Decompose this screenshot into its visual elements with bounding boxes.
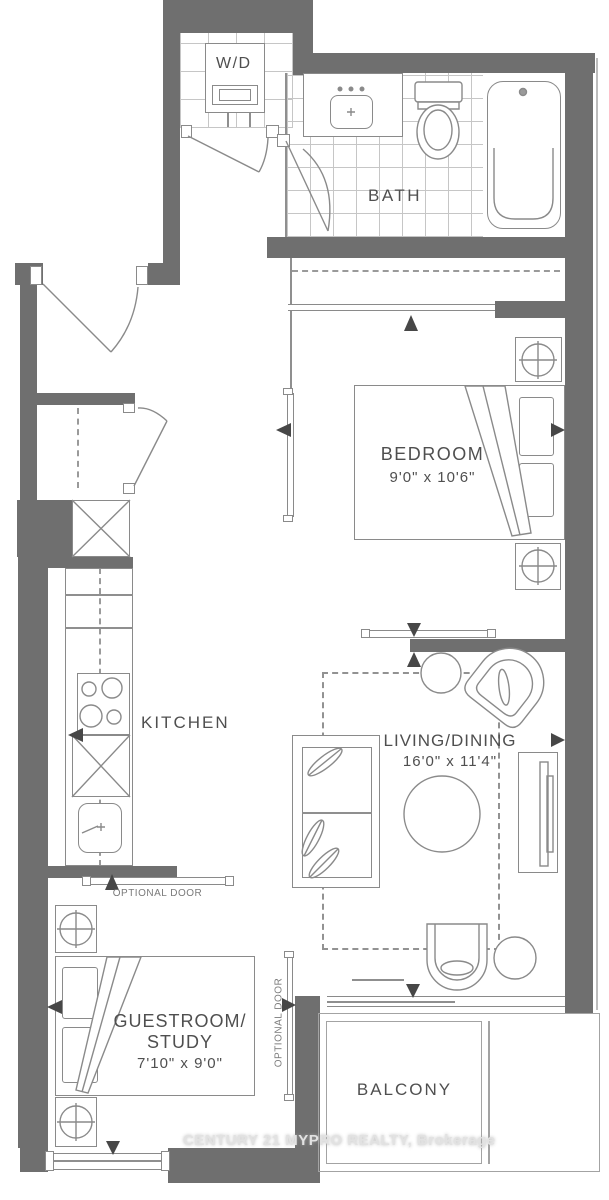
bath-door-jamb (277, 134, 290, 147)
guestroom-label-line2: STUDY (100, 1032, 260, 1053)
sliding-door-cap (487, 629, 496, 638)
window-glazing-line (596, 58, 598, 1010)
kitchen-sink (78, 803, 122, 853)
wall (410, 639, 593, 652)
nightstand (55, 905, 97, 953)
optional-door-label-side: OPTIONAL DOOR (274, 978, 285, 1068)
guestroom-window-midline (48, 1160, 168, 1162)
nightstand (515, 337, 562, 382)
closet-door-jamb (123, 403, 135, 413)
optional-door-track-side (287, 955, 293, 1095)
entry-shaft-box (72, 500, 130, 557)
wall (495, 301, 593, 318)
guestroom-dimensions: 7'10" x 9'0" (100, 1055, 260, 1072)
bath-partition-line (285, 73, 287, 237)
sliding-door-cap (284, 1094, 294, 1101)
kitchen-label: KITCHEN (141, 713, 230, 733)
optional-door-label-top: OPTIONAL DOOR (95, 888, 220, 899)
closet-door-swing (134, 408, 167, 486)
washer-dryer-leg (249, 113, 251, 127)
washer-dryer-door-inner (219, 89, 251, 101)
bedroom-closet-dashed-shelf (292, 270, 560, 272)
wall (267, 237, 593, 258)
wd-label: W/D (216, 55, 252, 73)
bedroom-dimensions: 9'0" x 10'6" (330, 469, 535, 486)
nightstand (55, 1097, 97, 1147)
balcony-label: BALCONY (327, 1080, 482, 1100)
floor-plan: W/D BATH BEDROOM 9'0" x 10'6" KITCHEN LI… (0, 0, 609, 1200)
sliding-door-cap (225, 876, 234, 886)
cooktop (77, 673, 130, 735)
kitchen-counter-divider (65, 594, 133, 596)
nightstand (515, 543, 561, 590)
wall (35, 393, 135, 405)
wall (168, 1148, 320, 1183)
living-dining-label: LIVING/DINING (350, 731, 550, 751)
balcony-door-slide-line (352, 979, 404, 981)
wall (48, 557, 133, 568)
wall (18, 557, 48, 1148)
pillow (62, 1027, 98, 1083)
guestroom-label-line1: GUESTROOM/ (100, 1011, 260, 1032)
bathtub (487, 81, 561, 229)
round-table (494, 937, 536, 979)
pillow (62, 967, 98, 1019)
wall (565, 73, 593, 1013)
sliding-door-cap (82, 876, 91, 886)
wd-door-swing (188, 136, 268, 172)
closet-door-jamb (123, 483, 135, 494)
bath-sink (330, 95, 373, 129)
sliding-door-cap (283, 515, 293, 522)
tv-console (518, 752, 558, 873)
wall (300, 53, 595, 73)
entry-door-jamb (30, 266, 42, 285)
kitchen-counter-divider (65, 627, 133, 629)
wall (20, 1148, 48, 1172)
bath-label: BATH (368, 186, 422, 206)
entry-closet-rod (77, 408, 79, 488)
bedroom-top-sliding-door (288, 304, 495, 311)
brokerage-watermark: CENTURY 21 MYPRO REALTY, Brokerage (183, 1132, 496, 1149)
wall (17, 500, 72, 557)
bedroom-wall-line (290, 318, 292, 393)
sofa-cushion-divider (302, 812, 372, 814)
window-jamb (45, 1151, 54, 1171)
sliding-door-cap (361, 629, 370, 638)
bedroom-label: BEDROOM (330, 444, 535, 465)
entry-door-swing (43, 284, 138, 352)
window-jamb (161, 1151, 170, 1171)
living-dining-dimensions: 16'0" x 11'4" (350, 753, 550, 770)
sliding-door-cap (284, 951, 294, 958)
entry-door-jamb (136, 266, 148, 285)
wall (163, 33, 180, 265)
wall (148, 263, 180, 285)
guestroom-window (48, 1153, 168, 1170)
kitchen-appliance-box (72, 735, 130, 797)
wd-door-jamb (181, 125, 192, 138)
bedroom-left-sliding-door (287, 393, 294, 517)
bedroom-bottom-sliding-door (365, 630, 492, 638)
washer-dryer-leg (227, 113, 229, 127)
balcony-door-panel-line (327, 1001, 455, 1003)
sliding-door-cap (283, 388, 293, 395)
wall (163, 0, 300, 33)
optional-door-track-top (85, 877, 226, 885)
